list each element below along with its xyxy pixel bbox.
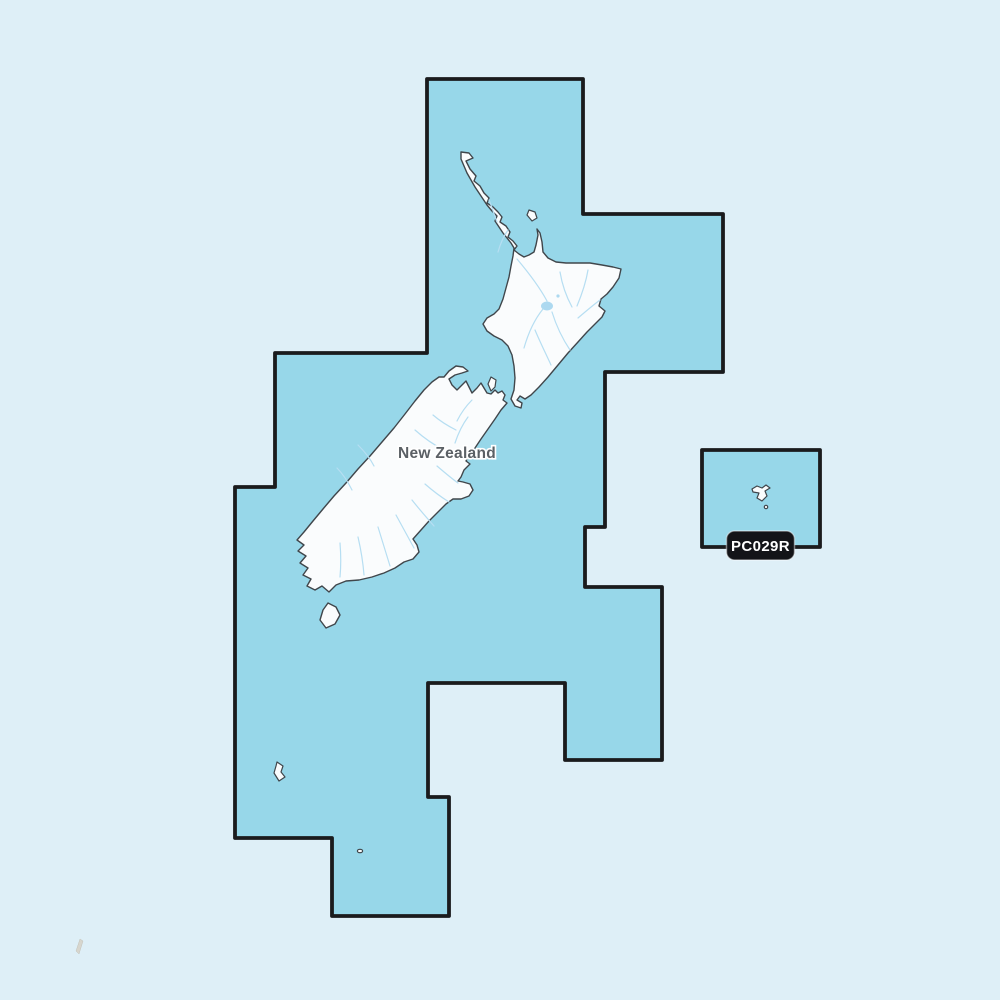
lake-taupo xyxy=(541,302,553,311)
badge-label: PC029R xyxy=(731,538,790,555)
pitt-island xyxy=(764,505,767,508)
small-lake xyxy=(556,294,559,297)
country-label: New Zealand xyxy=(398,445,496,462)
map-canvas: New Zealand PC029R xyxy=(0,0,1000,1000)
coverage-map: New Zealand PC029R xyxy=(0,0,1000,1000)
chart-code-badge[interactable]: PC029R xyxy=(727,531,795,560)
tiny-islet xyxy=(357,849,362,852)
